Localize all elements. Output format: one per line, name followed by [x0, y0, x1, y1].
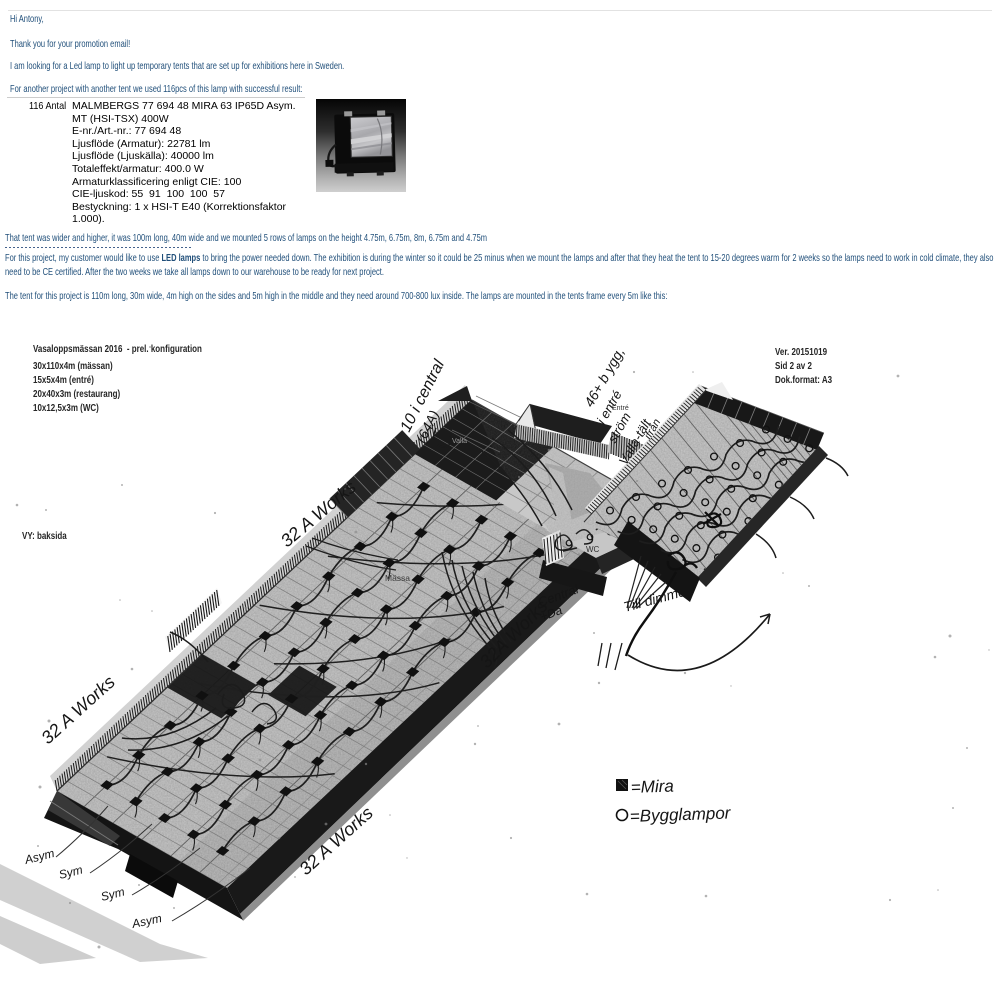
- svg-text:Asym: Asym: [22, 846, 55, 867]
- svg-text:Sym: Sym: [99, 885, 126, 904]
- svg-text:Entré: Entré: [612, 405, 629, 412]
- svg-text:Asym: Asym: [130, 911, 163, 931]
- svg-text:=Bygglampor: =Bygglampor: [629, 803, 732, 826]
- svg-text:WC: WC: [586, 545, 600, 554]
- svg-text:Mässa: Mässa: [385, 573, 410, 583]
- svg-text:Valla: Valla: [452, 438, 467, 445]
- svg-text:=Mira: =Mira: [630, 777, 674, 797]
- svg-text:Sym: Sym: [57, 863, 84, 882]
